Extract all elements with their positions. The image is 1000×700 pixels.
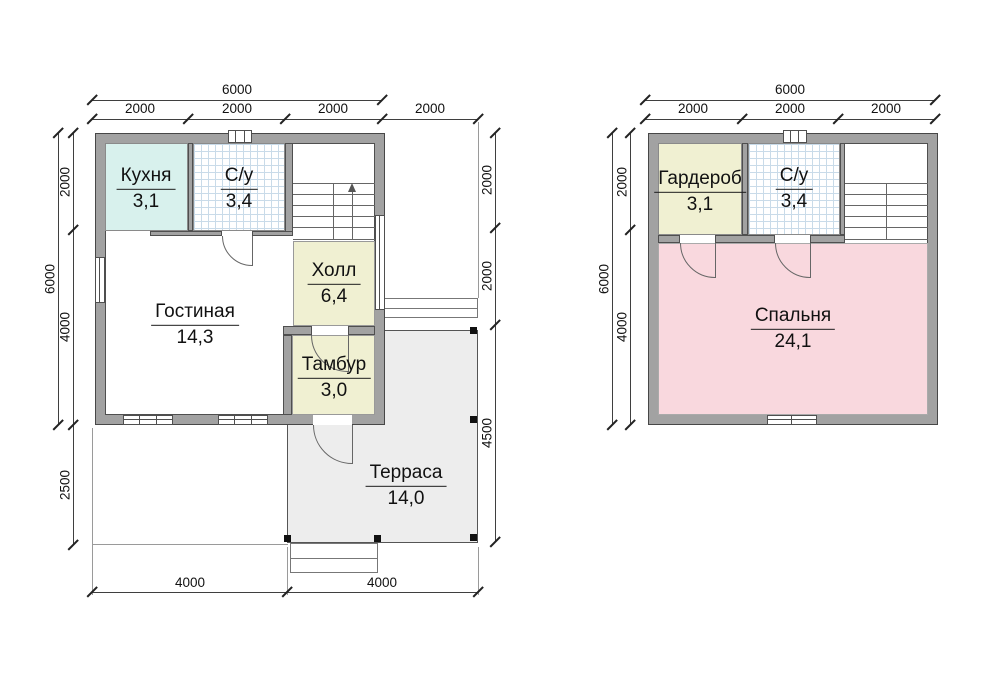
window-living-west-mullion (99, 257, 100, 303)
dim-value: 6000 (222, 82, 252, 97)
room-label-tambour: Тамбур 3,0 (298, 353, 371, 403)
room-name: Гостиная (151, 300, 239, 326)
dim-value: 2000 (480, 261, 495, 291)
stairs1-direction-line (352, 191, 353, 239)
dim-line-f1-left-segs (73, 133, 74, 545)
dim-value: 2000 (480, 165, 495, 195)
wall-bathroom2-stairs (840, 143, 845, 235)
room-area: 3,4 (221, 190, 258, 215)
room-name: Спальня (751, 304, 835, 330)
window-floor1-north-mullion (244, 130, 245, 143)
wall-bedroom-north-2 (715, 235, 775, 243)
wall-bathroom-stairs (285, 143, 293, 236)
window-living-south-1-rail (123, 419, 173, 420)
window-hall-east (375, 215, 385, 310)
window-living-south-1-mullion (139, 415, 140, 425)
wall-tambour-north-left (283, 326, 312, 335)
terrace-post (470, 327, 477, 334)
room-label-kitchen: Кухня 3,1 (117, 164, 176, 214)
dim-value: 2000 (615, 167, 630, 197)
window-living-south-2-mullion (234, 415, 235, 425)
wall-bedroom-north-3 (810, 235, 845, 243)
room-area: 6,4 (308, 285, 361, 310)
wall-living-north-right (252, 231, 293, 236)
stairs1-tread (293, 183, 375, 184)
dim-value: 2000 (318, 101, 348, 116)
stairs2-divider (886, 183, 887, 239)
door-bathroom2-leaf (810, 243, 811, 278)
dim-value: 2000 (775, 101, 805, 116)
floor-plans-canvas: Кухня 3,1 С/у 3,4 Холл 6,4 Гостиная 14,3… (0, 0, 1000, 700)
terrace-post (470, 416, 477, 423)
room-name: Кухня (117, 164, 176, 190)
window-floor2-north-mullion (798, 130, 799, 143)
dim-value: 2000 (125, 101, 155, 116)
dim-line-f2-left-segs (630, 133, 631, 425)
window-living-south-1 (123, 415, 173, 425)
dim-value: 6000 (597, 264, 612, 294)
room-label-bathroom1: С/у 3,4 (221, 164, 258, 214)
door-bathroom1-leaf (252, 236, 253, 266)
window-living-south-2-rail (218, 419, 268, 420)
door-wardrobe-leaf (715, 243, 716, 278)
wall-living-north-left (150, 231, 222, 236)
room-area: 24,1 (751, 330, 835, 355)
room-label-bathroom2: С/у 3,4 (776, 164, 813, 214)
dim-value: 4000 (58, 312, 73, 342)
room-name: Терраса (366, 461, 447, 487)
stairs1-divider (333, 183, 334, 239)
terrace-post (284, 535, 291, 542)
dim-line-f2-left-total (612, 133, 613, 425)
window-hall-east-mullion (379, 215, 380, 310)
room-area: 14,3 (151, 326, 239, 351)
dim-line-f1-right-segs (495, 133, 496, 542)
stairs1-bottom-edge (293, 239, 375, 240)
terrace-post (374, 535, 381, 542)
room-area: 14,0 (366, 487, 447, 512)
wall-bedroom-north-1 (658, 235, 680, 243)
stairs1-tread (293, 227, 375, 228)
wall-tambour-west (283, 335, 292, 415)
dim-value: 6000 (43, 264, 58, 294)
window-living-west (95, 257, 105, 303)
window-living-south-2-mullion (251, 415, 252, 425)
dim-value: 4000 (367, 575, 397, 590)
window-bedroom-south (767, 415, 817, 425)
door-tambour-terrace-leaf (352, 425, 353, 464)
dim-line-f2-top-segs (645, 119, 935, 120)
dim-value: 4000 (175, 575, 205, 590)
window-bedroom-south-mullion (791, 415, 792, 425)
window-living-south-2 (218, 415, 268, 425)
room-name: Тамбур (298, 353, 371, 379)
room-area: 3,4 (776, 190, 813, 215)
room-label-bedroom: Спальня 24,1 (751, 304, 835, 354)
room-area: 3,1 (654, 193, 746, 218)
window-floor1-north (228, 130, 252, 143)
dim-value: 6000 (775, 82, 805, 97)
room-label-living: Гостиная 14,3 (151, 300, 239, 350)
dim-value: 2000 (58, 167, 73, 197)
room-name: С/у (776, 164, 813, 190)
room-label-wardrobe: Гардероб 3,1 (654, 167, 746, 217)
window-living-south-1-mullion (156, 415, 157, 425)
room-area: 3,0 (298, 379, 371, 404)
door-opening-tambour-terrace (313, 415, 352, 425)
room-label-terrace: Терраса 14,0 (366, 461, 447, 511)
extension-line (92, 428, 93, 595)
room-name: Холл (308, 259, 361, 285)
stairs1-tread (293, 216, 375, 217)
dim-value: 4500 (480, 418, 495, 448)
extension-line (92, 544, 288, 545)
window-floor2-north (783, 130, 807, 143)
stairs1-tread (293, 194, 375, 195)
room-name: Гардероб (654, 167, 746, 193)
extension-line (478, 547, 479, 595)
stairs1-direction-arrow-icon (348, 183, 356, 192)
stairs2-bottom-edge (845, 239, 928, 240)
window-floor2-north-mullion (790, 130, 791, 143)
dim-value: 2000 (222, 101, 252, 116)
extension-line (287, 547, 288, 595)
room-label-hall: Холл 6,4 (308, 259, 361, 309)
terrace-post (470, 534, 477, 541)
room-name: С/у (221, 164, 258, 190)
terrace-entry-step-line (290, 558, 378, 559)
dim-value: 4000 (615, 312, 630, 342)
wall-tambour-north-right (348, 326, 375, 335)
dim-value: 2000 (871, 101, 901, 116)
stairs1-tread (293, 205, 375, 206)
dim-value: 2000 (678, 101, 708, 116)
dim-value: 2500 (58, 470, 73, 500)
window-bedroom-south-rail (767, 419, 817, 420)
window-floor1-north-mullion (235, 130, 236, 143)
room-area: 3,1 (117, 190, 176, 215)
dim-value: 2000 (415, 101, 445, 116)
